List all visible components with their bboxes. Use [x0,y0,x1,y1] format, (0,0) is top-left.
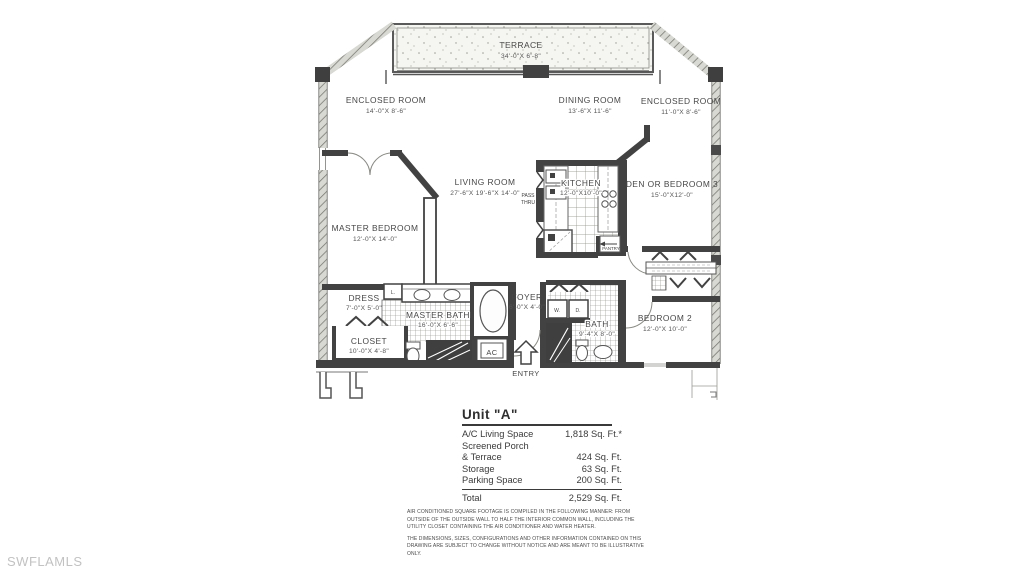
row-label: A/C Living Space [462,429,533,441]
master-bedroom-label: MASTER BEDROOM [332,223,419,233]
master-bedroom-dims: 12'-0"X 14'-0" [353,236,397,243]
double-door-arc [370,153,392,175]
washer-label: W. [554,308,560,314]
terrace-door-post [523,65,549,78]
living-dims: 27'-6"X 19'-6"X 14'-0" [450,190,520,197]
kitchen-label: KITCHEN [561,178,601,188]
living-label: LIVING ROOM [455,177,516,187]
bath-dims: 9'-4"X 8'-0" [579,331,615,338]
foyer-label: FOYER [511,292,542,302]
pantry-label: PANTRY [602,246,619,251]
summary-rows: A/C Living Space 1,818 Sq. Ft.* Screened… [462,429,622,490]
enclosed-left-label: ENCLOSED ROOM [346,95,426,105]
corner-column-right [708,67,723,82]
floor-plan-page: TERRACE 34'-0"X 6'-8" ENCLOSED ROOM 14'-… [0,0,1024,576]
row-label: Storage [462,464,495,476]
master-bedroom-walls [322,150,437,289]
summary-row: & Terrace 424 Sq. Ft. [462,452,622,464]
thru-label: THRU [521,200,535,206]
row-label: Parking Space [462,475,522,487]
window-bottom-wall [644,362,666,368]
enclosed-right-label: ENCLOSED ROOM [641,96,721,106]
closet-doors-up [652,252,696,260]
row-value: 1,818 Sq. Ft.* [565,429,622,441]
corner-column-left [315,67,330,82]
shower-guest [546,323,572,363]
bedroom2-label: BEDROOM 2 [638,313,692,323]
row-value: 424 Sq. Ft. [577,452,622,464]
dining-dims: 13'-6"X 11'-6" [568,108,612,115]
total-value: 2,529 Sq. Ft. [569,493,622,503]
linen-label: L. [391,290,395,296]
disclaimer: AIR CONDITIONED SQUARE FOOTAGE IS COMPIL… [407,509,647,562]
entry-label: ENTRY [512,369,540,378]
den-label: DEN OR BEDROOM 3 [626,179,718,189]
summary-total-row: Total 2,529 Sq. Ft. [462,493,622,503]
kitchen-counter-right [598,166,618,232]
den-dims: 15'-0"X12'-0" [651,192,693,199]
enclosed-left-dims: 14'-0"X 8'-6" [366,108,406,115]
ac-label: AC [486,348,497,357]
disclaimer-paragraph-2: THE DIMENSIONS, SIZES, CONFIGURATIONS AN… [407,536,647,559]
closet-label: CLOSET [351,336,387,346]
foyer-dims: 6'-0"X 4'-0" [509,304,545,311]
double-vanity [402,284,472,302]
closet-doors-down [670,278,710,287]
unit-summary: Unit "A" A/C Living Space 1,818 Sq. Ft.*… [462,407,634,503]
dress-dims: 7'-0"X 5'-0" [346,305,382,312]
unit-title: Unit "A" [462,407,612,426]
terrace-label: TERRACE [499,40,542,50]
summary-row: Parking Space 200 Sq. Ft. [462,475,622,487]
bedroom2-dims: 12'-0"X 10'-0" [643,326,687,333]
closet-shelves [646,262,716,274]
bath-label: BATH [585,319,609,329]
row-label: Screened Porch [462,441,529,453]
dryer-label: D. [576,308,581,314]
enclosed-right-dims: 11'-0"X 8'-6" [661,109,701,116]
entry-arrow-icon [515,341,537,364]
master-bath-label: MASTER BATH [406,310,470,320]
summary-row: Screened Porch [462,441,622,453]
toilet-guest [576,340,588,361]
pass-label: PASS [522,193,536,199]
kitchen-dims: 12'-0"X10'-0" [560,190,602,197]
row-label: & Terrace [462,452,502,464]
dining-label: DINING ROOM [559,95,622,105]
terrace-dims: 34'-0"X 6'-8" [501,53,541,60]
dimension-lines [692,368,717,400]
dress-label: DRESS [348,293,379,303]
row-value: 63 Sq. Ft. [582,464,622,476]
sink-guest [594,346,612,359]
double-door-arc [348,153,370,175]
bottom-wall [316,360,720,368]
mls-watermark: SWFLAMLS [7,554,83,569]
total-label: Total [462,493,482,503]
summary-row: Storage 63 Sq. Ft. [462,464,622,476]
folding-doors [550,284,588,292]
summary-row: A/C Living Space 1,818 Sq. Ft.* [462,429,622,441]
bathtub [472,284,514,338]
kitchen-counter-left [544,166,568,230]
disclaimer-paragraph-1: AIR CONDITIONED SQUARE FOOTAGE IS COMPIL… [407,509,647,532]
hollow-wall [424,198,436,289]
row-value: 200 Sq. Ft. [577,475,622,487]
closet-dims: 10'-0"X 4'-8" [349,348,389,355]
master-bath-dims: 16'-0"X 6'-6" [418,322,458,329]
